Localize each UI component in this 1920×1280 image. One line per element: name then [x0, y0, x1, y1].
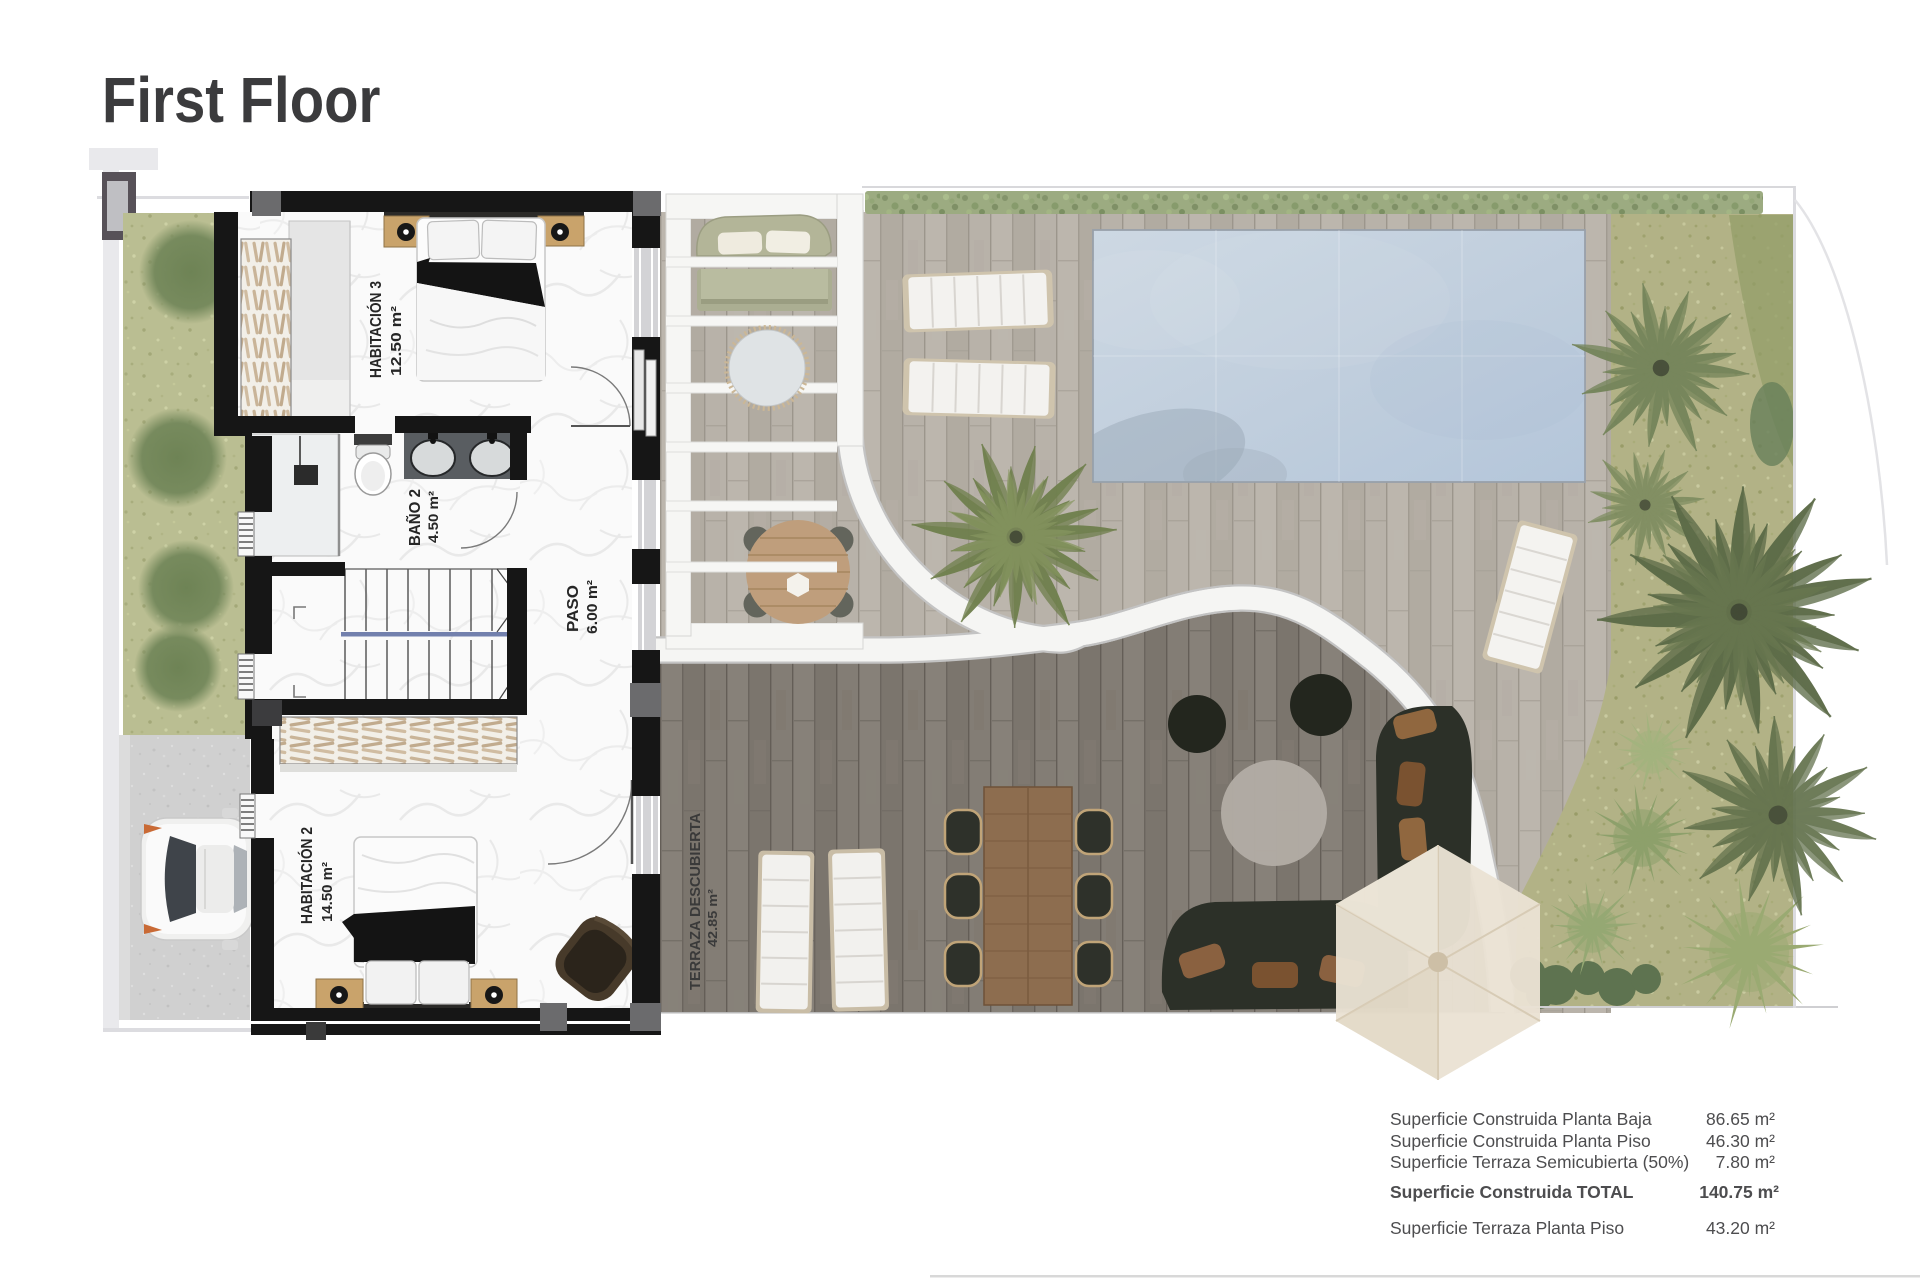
svg-text:TERRAZA DESCUBIERTA: TERRAZA DESCUBIERTA: [688, 812, 704, 990]
svg-text:4.50 m²: 4.50 m²: [425, 491, 441, 543]
svg-text:12.50 m²: 12.50 m²: [389, 306, 405, 376]
svg-text:BAÑO 2: BAÑO 2: [406, 489, 424, 546]
svg-text:Superficie Terraza Planta Piso: Superficie Terraza Planta Piso: [1390, 1218, 1624, 1238]
svg-text:Superficie Construida Planta B: Superficie Construida Planta Baja: [1390, 1109, 1652, 1129]
svg-text:6.00 m²: 6.00 m²: [585, 580, 601, 634]
svg-text:First Floor: First Floor: [102, 64, 380, 136]
svg-text:Superficie Terraza Semicubiert: Superficie Terraza Semicubierta (50%): [1390, 1152, 1689, 1172]
svg-text:86.65 m²: 86.65 m²: [1706, 1109, 1775, 1129]
svg-text:42.85 m²: 42.85 m²: [705, 888, 720, 947]
svg-text:14.50 m²: 14.50 m²: [320, 862, 336, 922]
svg-text:Superficie Construida TOTAL: Superficie Construida TOTAL: [1390, 1182, 1634, 1202]
svg-text:HABITACIÓN 3: HABITACIÓN 3: [366, 281, 385, 378]
svg-text:HABITACIÓN 2: HABITACIÓN 2: [297, 827, 316, 924]
svg-text:46.30 m²: 46.30 m²: [1706, 1131, 1775, 1151]
svg-text:Superficie Construida Planta P: Superficie Construida Planta Piso: [1390, 1131, 1651, 1151]
svg-text:7.80 m²: 7.80 m²: [1716, 1152, 1775, 1172]
svg-text:43.20 m²: 43.20 m²: [1706, 1218, 1775, 1238]
svg-text:PASO: PASO: [565, 585, 582, 632]
svg-text:140.75 m²: 140.75 m²: [1699, 1182, 1779, 1202]
